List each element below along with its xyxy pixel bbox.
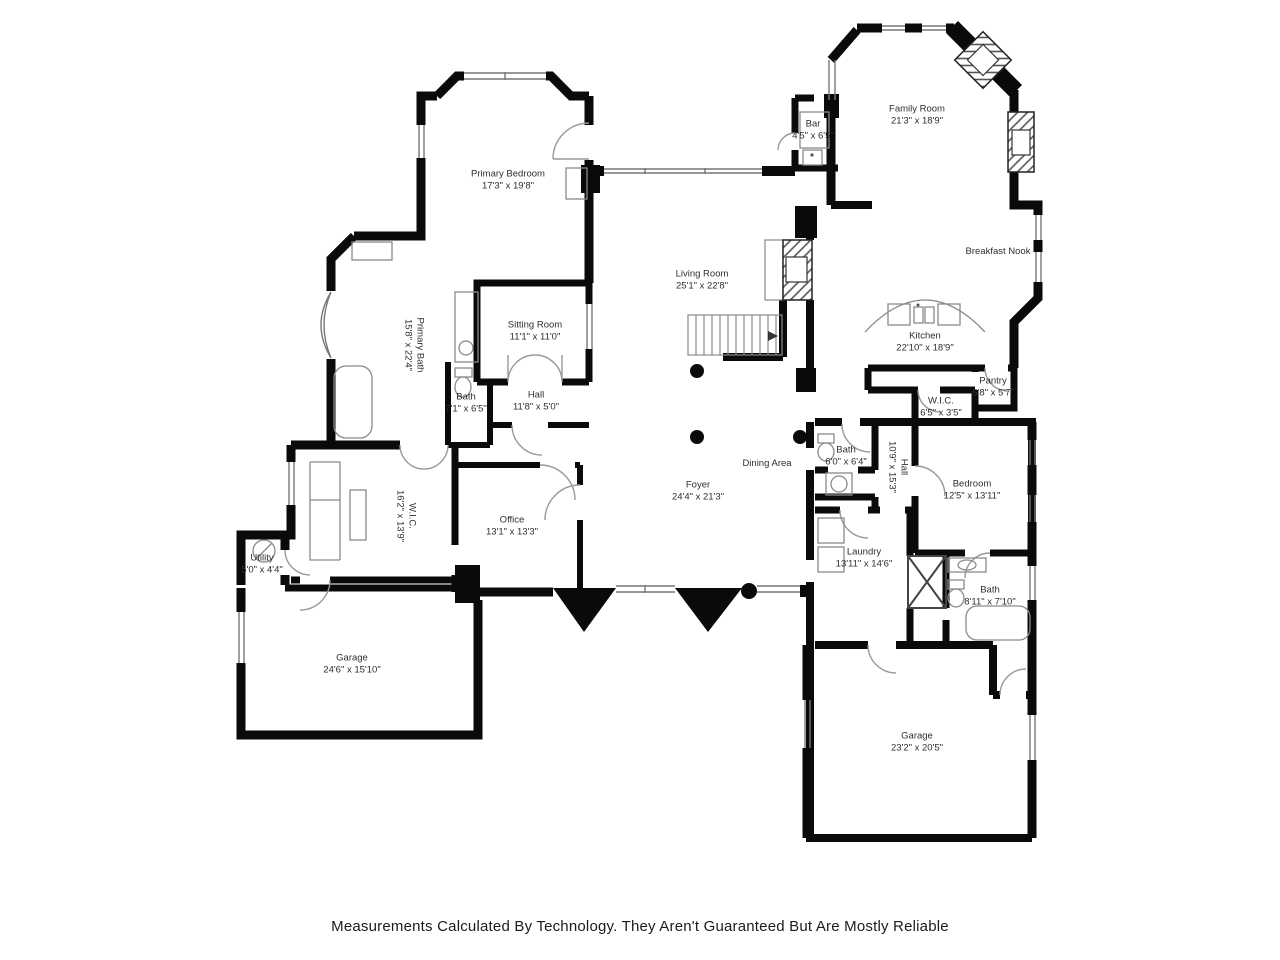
walls xyxy=(241,27,1038,838)
fixtures xyxy=(253,112,1030,640)
toilet xyxy=(455,377,471,397)
shower xyxy=(908,556,946,608)
windows xyxy=(239,26,1041,760)
closet-island xyxy=(350,490,366,540)
measurement-disclaimer: Measurements Calculated By Technology. T… xyxy=(331,918,949,935)
washer xyxy=(818,518,844,543)
bath-tub xyxy=(966,606,1030,640)
closet-shelving xyxy=(310,462,340,560)
bar-sink xyxy=(803,150,822,165)
toilet xyxy=(818,443,834,461)
kitchen-sink xyxy=(914,307,923,323)
dryer xyxy=(818,547,844,572)
kitchen-cabinet xyxy=(938,304,960,325)
primary-bath-tub xyxy=(334,366,372,438)
kitchen-cabinet xyxy=(888,304,910,325)
powder-sink xyxy=(831,476,847,492)
primary-bath-counter xyxy=(352,242,392,260)
primary-bath-sink xyxy=(459,341,473,355)
water-heater xyxy=(253,540,275,562)
toilet-tank xyxy=(455,368,472,377)
columns xyxy=(690,364,807,444)
toilet-tank xyxy=(948,580,964,589)
living-fireplace-hearth xyxy=(765,240,783,300)
kitchen-sink xyxy=(925,307,934,323)
toilet-tank xyxy=(818,434,834,443)
stairs xyxy=(688,315,782,355)
floorplan-page: Family Room 21'3" x 18'9" Bar 4'5" x 6'5… xyxy=(0,0,1280,960)
toilet xyxy=(948,589,964,607)
floorplan-svg xyxy=(0,0,1280,960)
